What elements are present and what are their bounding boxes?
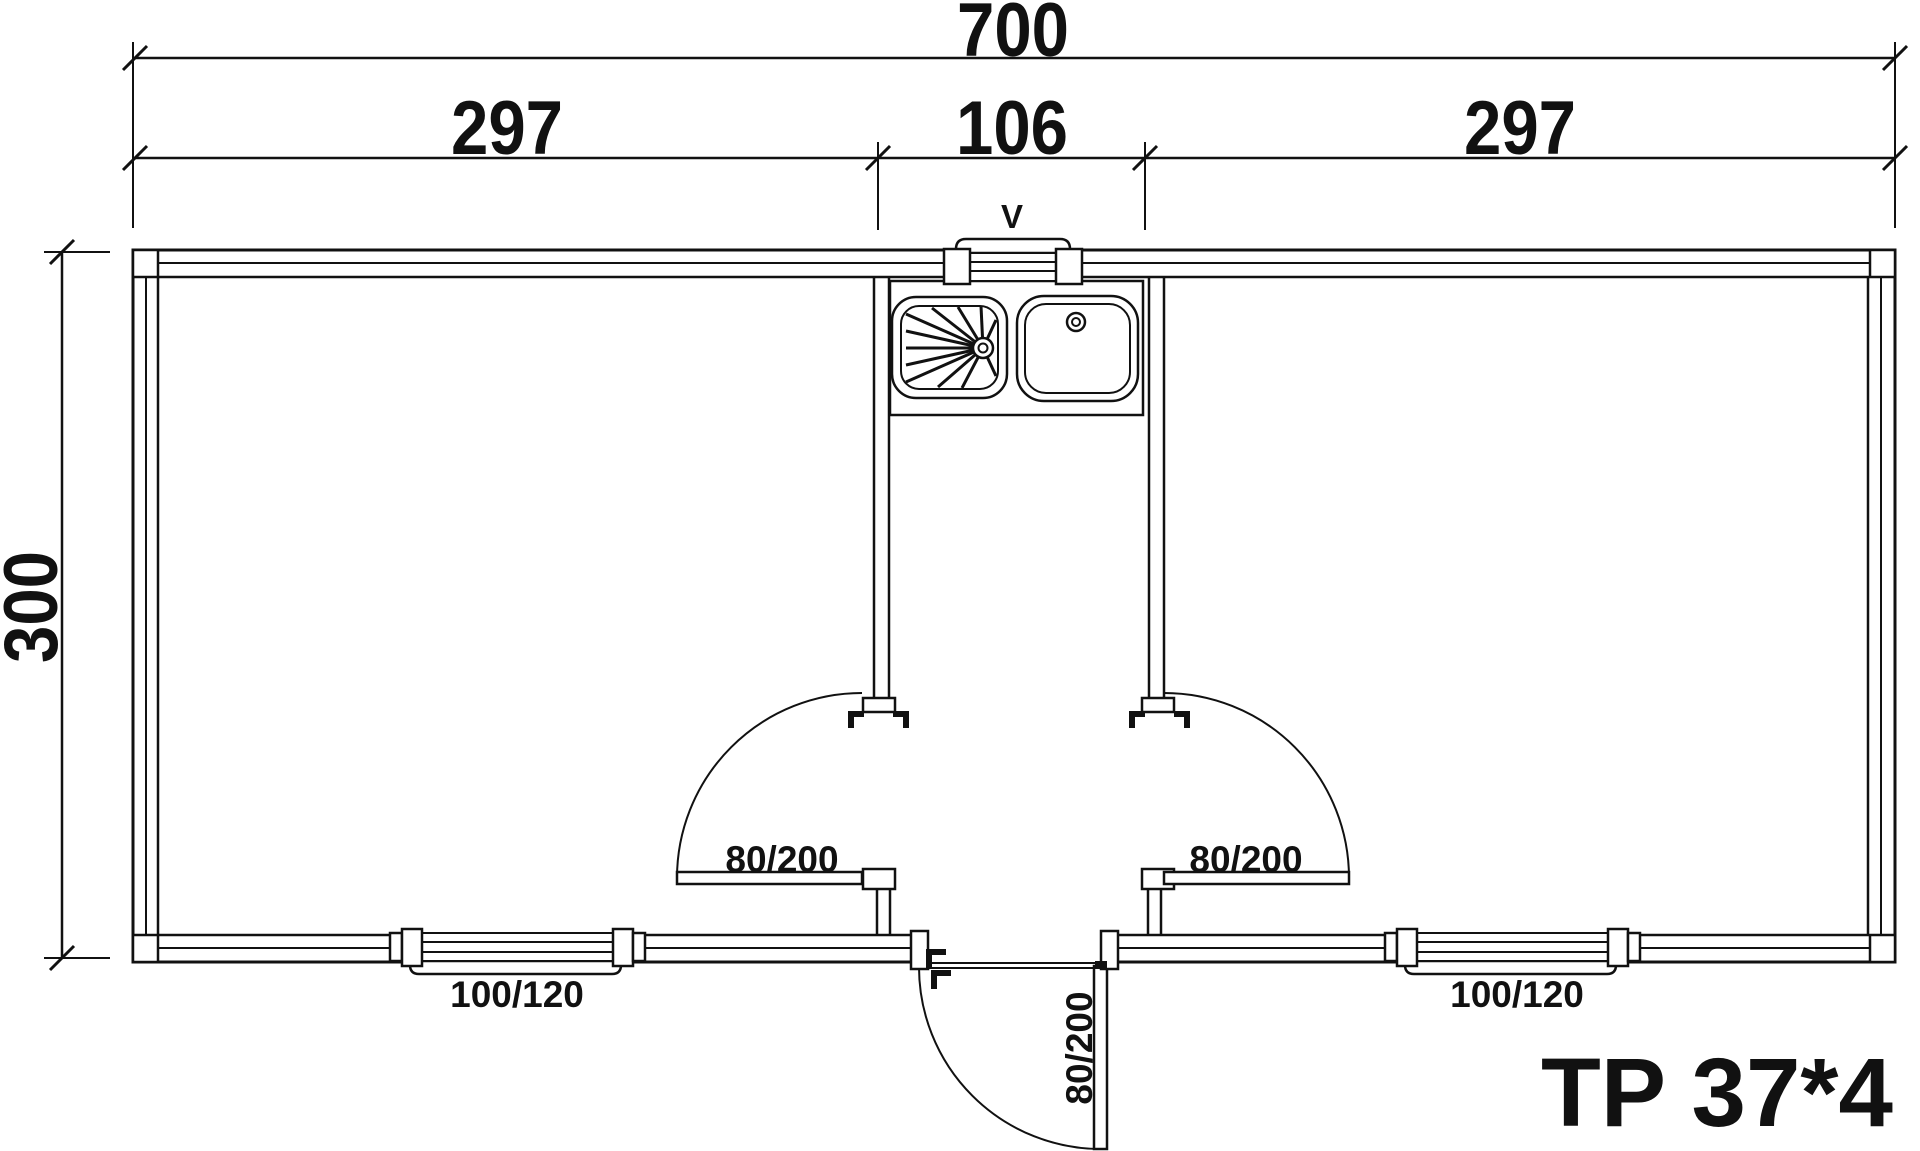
vent-window-jamb-left (944, 249, 970, 284)
door-left-label: 80/200 (725, 839, 838, 880)
vent-label: V (1001, 198, 1023, 235)
window-right (1385, 929, 1640, 974)
dim-label-300: 300 (0, 551, 74, 663)
dim-label-106: 106 (956, 86, 1068, 171)
door-right-label: 80/200 (1189, 839, 1302, 880)
shower-tray (892, 297, 1007, 398)
vent-window (944, 239, 1082, 284)
entrance-jamb-left (911, 931, 928, 969)
window-left-sill (410, 961, 621, 974)
sanitary-unit (890, 281, 1143, 415)
vent-window-jamb-right (1056, 249, 1082, 284)
floor-plan-drawing: 700 297 106 297 300 V 80/200 80/200 80/2… (0, 0, 1920, 1151)
window-right-glazing (1417, 933, 1608, 961)
window-right-sill (1405, 961, 1616, 974)
vent-window-cap (956, 239, 1070, 253)
window-left-glazing (422, 933, 613, 961)
window-left (390, 929, 645, 974)
dim-label-700: 700 (957, 0, 1069, 73)
entrance-opening (929, 930, 1101, 972)
corner-post-top-left (133, 250, 158, 277)
dim-label-297-left: 297 (451, 86, 563, 171)
floor-plan-canvas: 700 297 106 297 300 V 80/200 80/200 80/2… (0, 0, 1920, 1151)
corner-post-bottom-left (133, 935, 158, 962)
vent-window-glazing (970, 253, 1056, 281)
window-left-label: 100/120 (450, 974, 584, 1015)
dimension-lines (44, 42, 1907, 970)
door-jamb-blocks (863, 698, 1174, 889)
window-right-label: 100/120 (1450, 974, 1584, 1015)
model-title: TP 37*4 (1541, 1038, 1893, 1147)
door-entrance-label: 80/200 (1059, 991, 1100, 1104)
corner-post-bottom-right (1870, 935, 1895, 962)
door-frame-marks (848, 711, 1190, 728)
sink (1017, 296, 1138, 401)
dim-label-297-right: 297 (1464, 86, 1576, 171)
corner-post-top-right (1870, 250, 1895, 277)
dimension-ticks (50, 46, 1907, 970)
